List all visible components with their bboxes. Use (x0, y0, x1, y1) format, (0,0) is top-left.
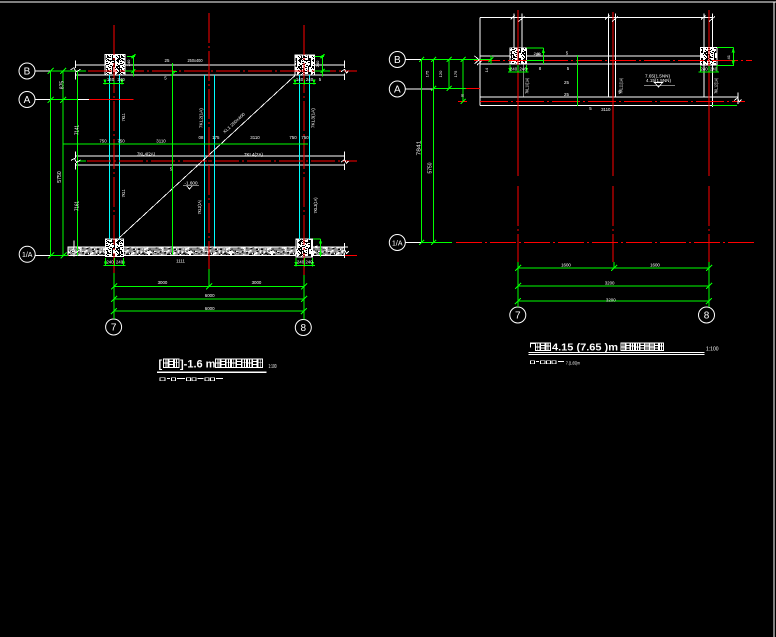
svg-text:1111: 1111 (176, 259, 185, 264)
svg-text:7: 7 (515, 311, 521, 322)
svg-text:7.(1.65)m: 7.(1.65)m (566, 361, 580, 366)
svg-text:1/A: 1/A (392, 241, 403, 248)
svg-text:140: 140 (107, 77, 115, 82)
svg-text:240: 240 (710, 67, 718, 72)
svg-text:240: 240 (510, 67, 518, 72)
svg-text:-1.600: -1.600 (184, 181, 197, 186)
svg-text:7141: 7141 (75, 125, 81, 135)
svg-text:240: 240 (106, 260, 114, 265)
svg-text:7: 7 (111, 323, 117, 334)
svg-text:1/A: 1/A (22, 252, 33, 259)
svg-text:5750: 5750 (428, 163, 434, 174)
svg-text:750: 750 (289, 135, 297, 140)
svg-text:25: 25 (564, 92, 569, 97)
svg-text:175: 175 (453, 70, 458, 77)
svg-text:3000: 3000 (158, 280, 168, 285)
svg-text:7KL12(1A): 7KL12(1A) (714, 77, 719, 93)
svg-text:750: 750 (301, 135, 309, 140)
svg-text:7KL3(1A): 7KL3(1A) (311, 108, 316, 129)
svg-text:240: 240 (305, 260, 313, 265)
svg-text:7KL4(2A): 7KL4(2A) (244, 152, 264, 157)
svg-text:3110: 3110 (250, 135, 260, 140)
svg-text:]-1.6 m: ]-1.6 m (180, 359, 216, 371)
svg-text:6000: 6000 (205, 293, 215, 298)
svg-text:3200: 3200 (606, 298, 616, 303)
svg-text:1:100: 1:100 (706, 347, 719, 353)
svg-text:240: 240 (117, 77, 125, 82)
svg-text:250x400: 250x400 (188, 58, 204, 63)
svg-text:240: 240 (315, 60, 320, 67)
svg-text:240: 240 (306, 77, 314, 82)
svg-text:175: 175 (425, 70, 430, 77)
svg-text:08: 08 (199, 135, 204, 140)
svg-text:3200: 3200 (605, 280, 615, 285)
svg-text:7KL1: 7KL1 (121, 189, 126, 198)
svg-text:1600: 1600 (650, 263, 660, 268)
svg-text:25: 25 (165, 58, 170, 63)
svg-text:A: A (394, 85, 401, 96)
svg-text:7KL10(1A): 7KL10(1A) (524, 77, 529, 93)
svg-text:4.15 (7.65 )m: 4.15 (7.65 )m (552, 342, 618, 353)
svg-text:A: A (24, 95, 31, 106)
svg-text:41: 41 (726, 54, 731, 59)
svg-text:7KL1: 7KL1 (121, 113, 126, 122)
svg-text:7161: 7161 (74, 201, 80, 211)
svg-text:240: 240 (126, 59, 131, 66)
svg-text:25: 25 (564, 80, 569, 85)
svg-text:3000: 3000 (252, 280, 262, 285)
svg-text:750: 750 (99, 139, 107, 144)
svg-text:5750: 5750 (57, 171, 63, 183)
svg-text:3110: 3110 (156, 139, 166, 144)
svg-text:8: 8 (704, 311, 710, 322)
svg-text:140: 140 (296, 77, 304, 82)
svg-text:240: 240 (297, 260, 305, 265)
svg-text:1600: 1600 (561, 263, 571, 268)
svg-text:14: 14 (484, 67, 489, 72)
svg-text:7KL4(2A): 7KL4(2A) (137, 152, 156, 157)
svg-text:875: 875 (60, 81, 66, 90)
svg-text:7KL3(1A): 7KL3(1A) (313, 197, 318, 213)
svg-text:175: 175 (212, 135, 220, 140)
svg-text:7KL2(1A): 7KL2(1A) (199, 108, 204, 129)
svg-text:750: 750 (117, 139, 125, 144)
svg-text:8: 8 (301, 323, 307, 334)
svg-text:240: 240 (700, 67, 708, 72)
svg-text:1:100: 1:100 (269, 364, 277, 370)
svg-text:240: 240 (519, 67, 527, 72)
svg-text:7KL2(1A): 7KL2(1A) (197, 200, 202, 214)
svg-text:240: 240 (534, 51, 541, 56)
svg-text:120: 120 (438, 70, 443, 77)
svg-text:7841: 7841 (416, 141, 422, 156)
svg-text:240: 240 (116, 260, 124, 265)
svg-text:6000: 6000 (205, 306, 215, 311)
svg-text:3110: 3110 (601, 107, 611, 112)
svg-text:B: B (394, 55, 401, 66)
svg-text:B: B (24, 67, 31, 78)
svg-text:[: [ (159, 359, 163, 371)
